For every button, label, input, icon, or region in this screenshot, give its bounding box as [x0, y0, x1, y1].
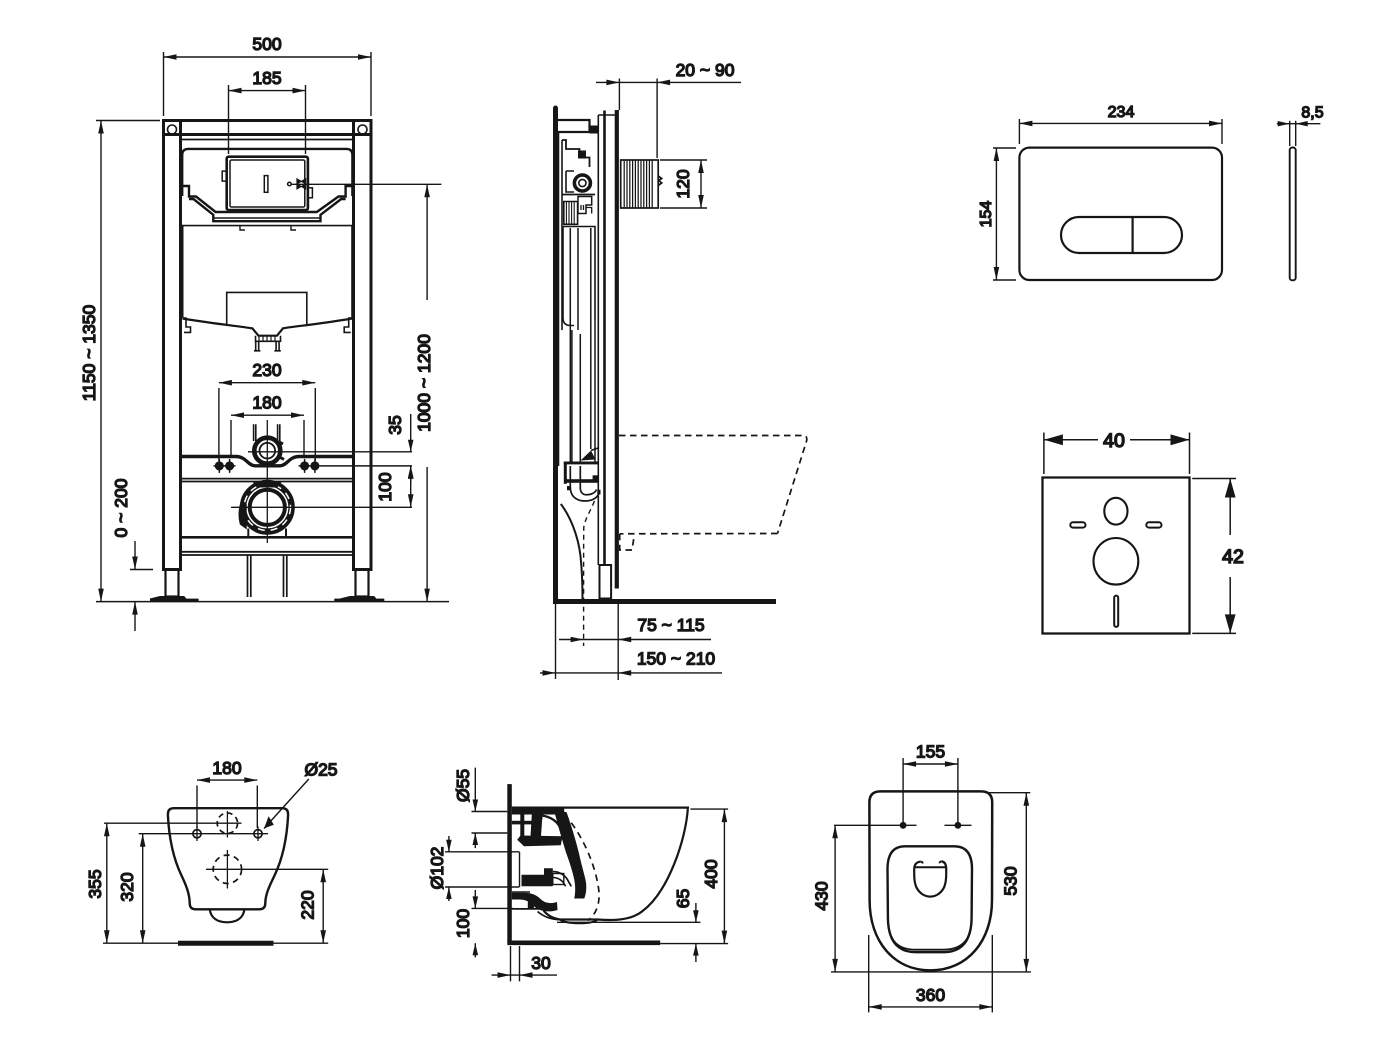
svg-text:355: 355 [85, 869, 105, 898]
svg-text:500: 500 [252, 34, 281, 54]
svg-text:400: 400 [701, 859, 721, 888]
svg-text:180: 180 [252, 393, 281, 413]
svg-text:30: 30 [531, 953, 551, 973]
svg-text:234: 234 [1108, 104, 1135, 121]
svg-text:65: 65 [673, 889, 693, 908]
svg-text:100: 100 [453, 909, 473, 938]
svg-text:8,5: 8,5 [1301, 105, 1323, 122]
svg-text:120: 120 [673, 169, 693, 198]
svg-text:185: 185 [252, 68, 281, 88]
svg-text:75 ~ 115: 75 ~ 115 [637, 615, 704, 635]
svg-text:Ø102: Ø102 [427, 847, 447, 890]
svg-text:320: 320 [117, 872, 137, 901]
svg-text:360: 360 [916, 985, 945, 1005]
svg-text:0 ~ 200: 0 ~ 200 [111, 478, 131, 537]
svg-text:Ø55: Ø55 [453, 769, 473, 802]
svg-text:220: 220 [298, 890, 318, 919]
svg-text:100: 100 [375, 472, 395, 501]
svg-text:40: 40 [1103, 430, 1125, 452]
svg-text:1150 ~ 1350: 1150 ~ 1350 [79, 304, 99, 401]
svg-text:430: 430 [812, 881, 832, 910]
svg-text:230: 230 [252, 360, 281, 380]
svg-text:155: 155 [916, 742, 945, 762]
svg-text:42: 42 [1222, 546, 1244, 568]
svg-text:180: 180 [212, 758, 241, 778]
svg-text:154: 154 [978, 201, 995, 228]
svg-text:20 ~ 90: 20 ~ 90 [676, 60, 735, 80]
svg-text:530: 530 [1001, 866, 1021, 895]
svg-text:150 ~ 210: 150 ~ 210 [637, 649, 716, 669]
svg-text:35: 35 [385, 415, 405, 434]
svg-text:Ø25: Ø25 [304, 760, 337, 780]
svg-text:1000 ~ 1200: 1000 ~ 1200 [414, 334, 434, 432]
